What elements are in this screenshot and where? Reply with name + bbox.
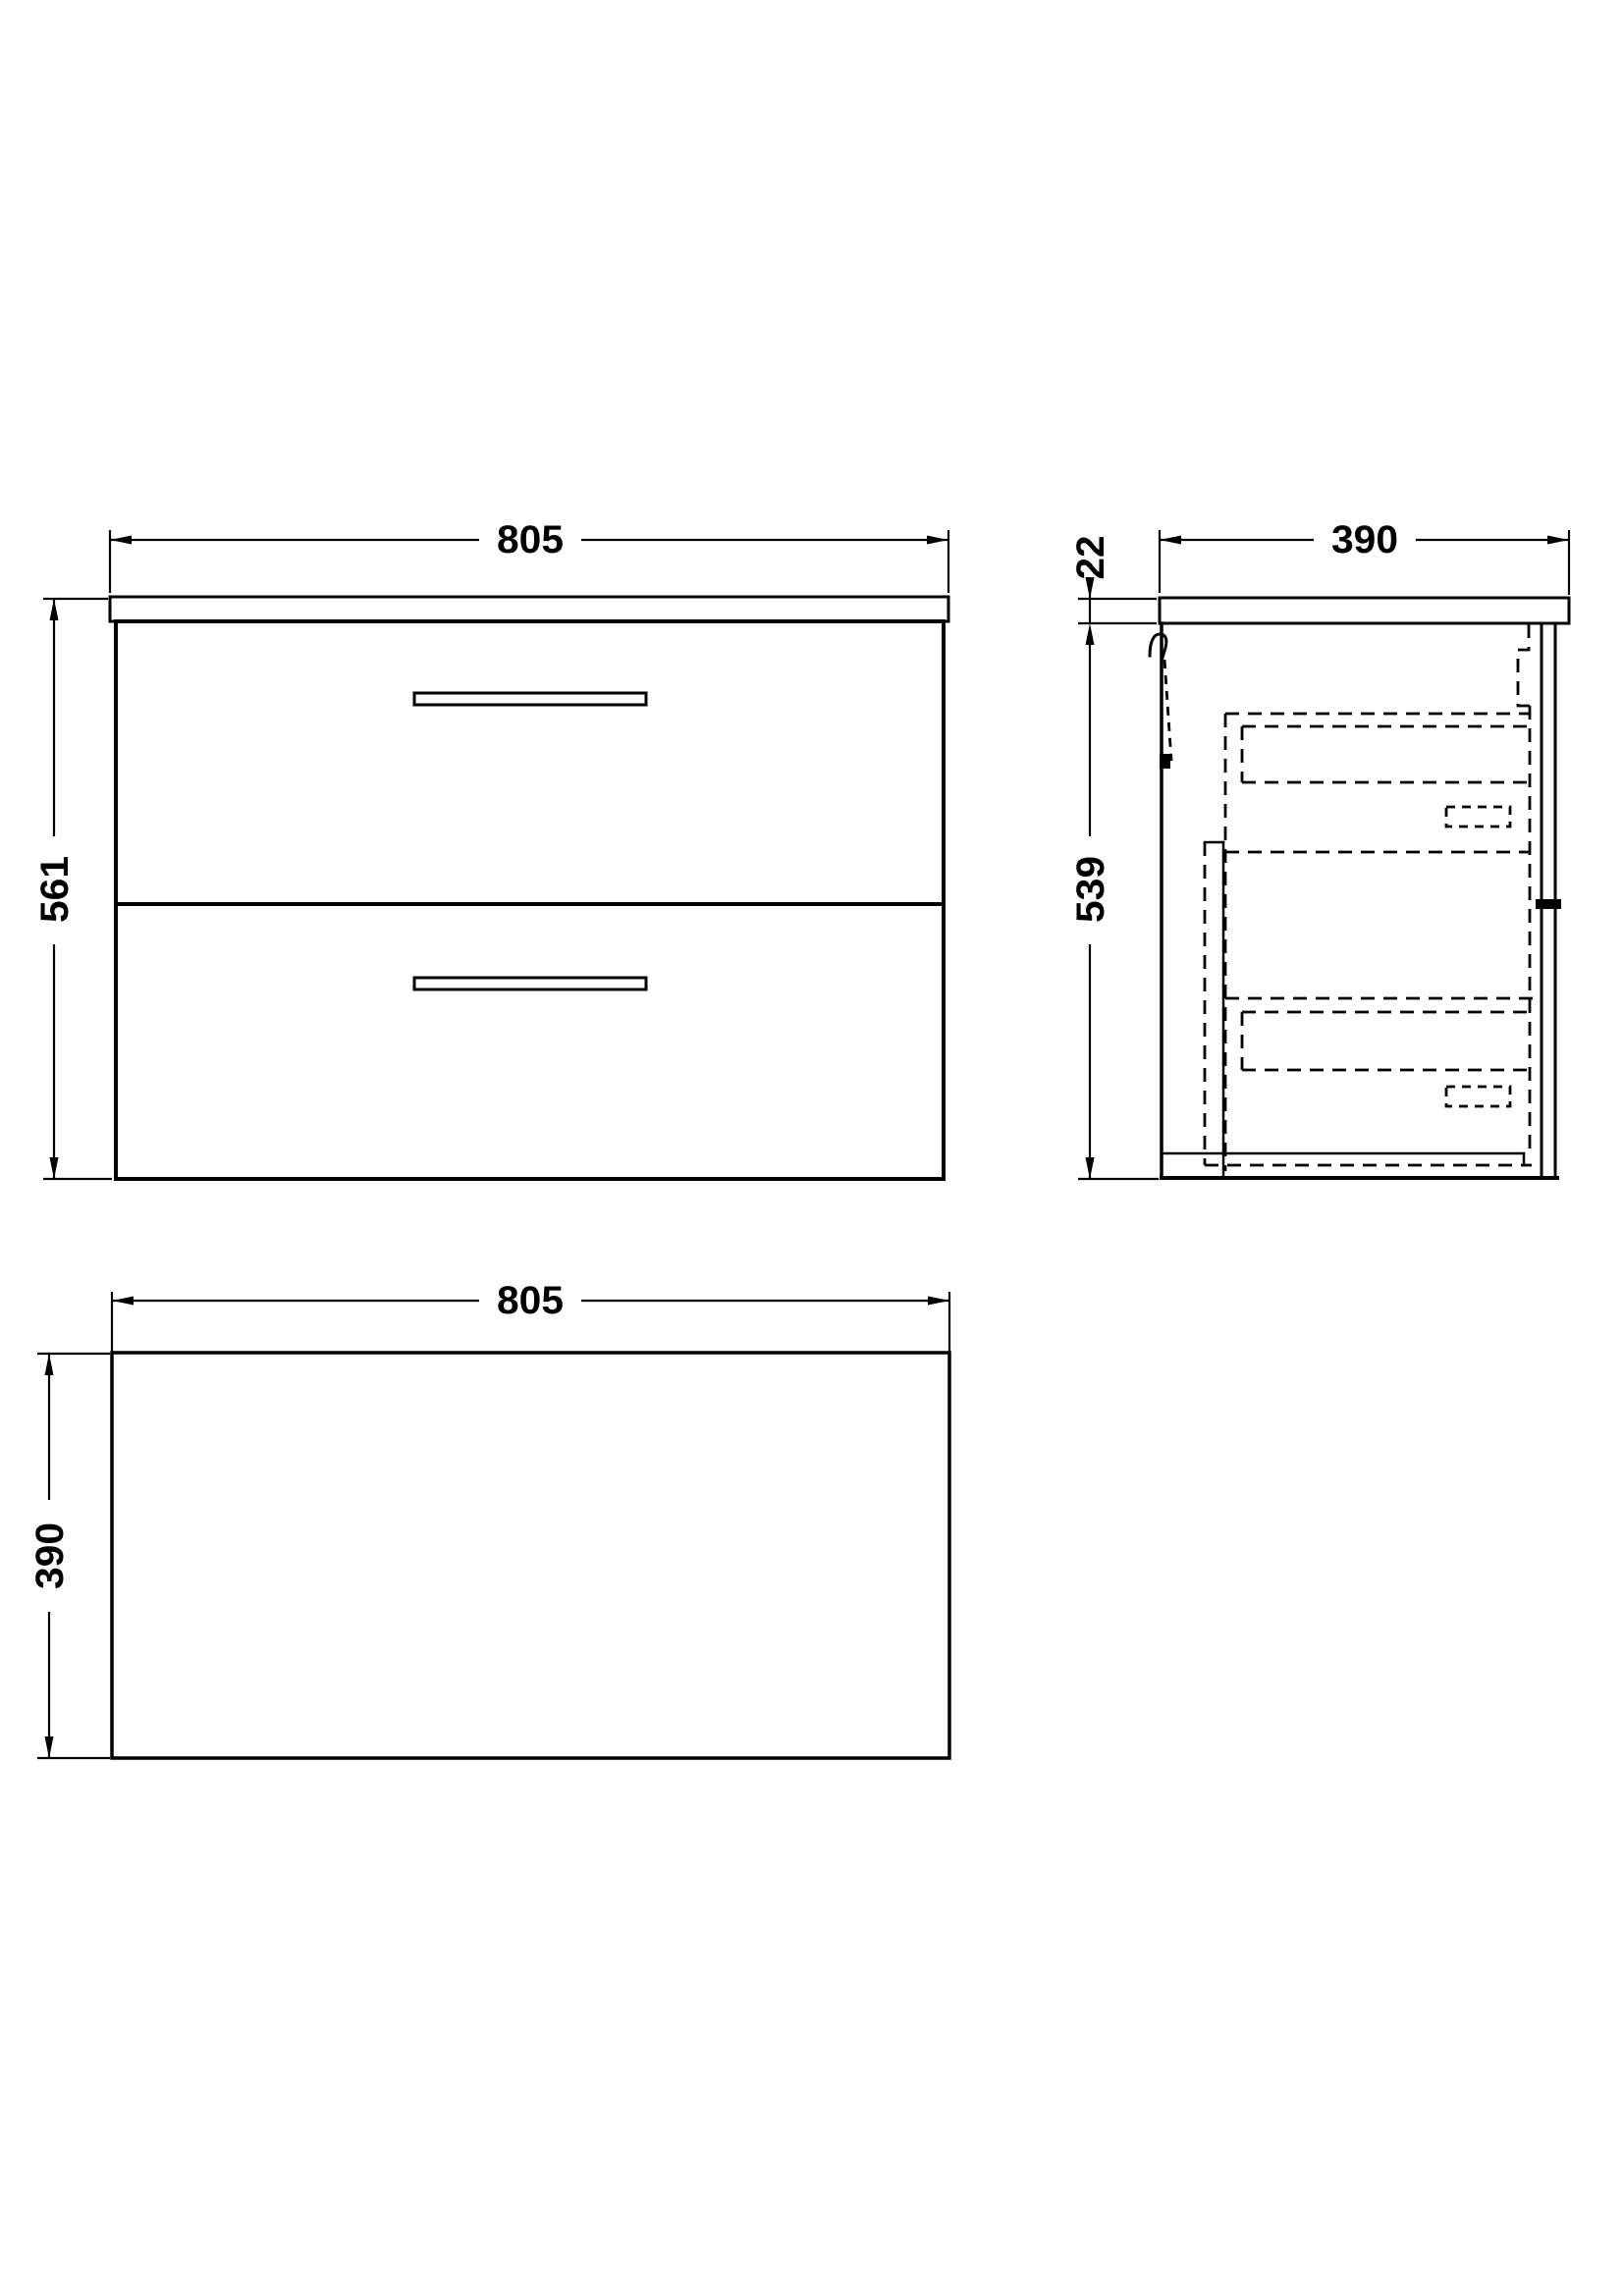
arrowhead (45, 1736, 54, 1758)
cabinet-height-label: 539 (1069, 856, 1112, 923)
side-worktop (1160, 598, 1569, 623)
drawer-front-junction (1536, 899, 1561, 909)
plan-width-dimension: 805 (112, 1279, 949, 1353)
arrowhead (50, 1157, 59, 1179)
technical-drawing-page: 805 561 390 (0, 0, 1623, 2296)
worktop-thickness-dimension: 22 (1069, 536, 1157, 646)
arrowhead (45, 1354, 54, 1375)
side-depth-label: 390 (1331, 518, 1398, 561)
arrowhead (928, 1297, 949, 1306)
plan-depth-label: 390 (28, 1522, 72, 1589)
arrowhead (1086, 623, 1095, 645)
arrowhead (112, 1297, 134, 1306)
plan-view: 805 390 (28, 1279, 949, 1758)
bracket-hook (1150, 634, 1166, 658)
arrowhead (1086, 1157, 1095, 1179)
plan-width-label: 805 (497, 1279, 564, 1322)
front-height-label: 561 (33, 856, 77, 923)
plan-worktop-outline (112, 1353, 949, 1758)
drawer-runner-block (1446, 807, 1510, 827)
bracket-stem (1164, 660, 1171, 761)
worktop-thickness-label: 22 (1069, 536, 1112, 580)
front-width-label: 805 (497, 518, 564, 561)
side-depth-dimension: 390 (1160, 518, 1569, 595)
arrowhead (110, 536, 132, 545)
plan-depth-dimension: 390 (28, 1354, 110, 1758)
arrowhead (1547, 536, 1569, 545)
bracket-foot (1160, 754, 1170, 769)
front-view: 805 561 (33, 518, 948, 1179)
vanity-unit-technical-drawing: 805 561 390 (0, 0, 1623, 2296)
top-drawer-handle (414, 693, 646, 705)
lower-drawer-box (1225, 998, 1534, 1106)
front-height-dimension: 561 (33, 599, 112, 1179)
side-view: 390 22 539 (1069, 518, 1569, 1179)
drawer-runner-block (1446, 1087, 1510, 1106)
cabinet-height-dimension: 539 (1069, 645, 1159, 1179)
bottom-drawer-handle (414, 978, 646, 989)
arrowhead (50, 599, 59, 620)
front-worktop (110, 597, 948, 621)
drawer-front-hanger-profile (1518, 624, 1530, 706)
arrowhead (927, 536, 948, 545)
front-width-dimension: 805 (110, 518, 948, 593)
service-void (1205, 842, 1530, 1178)
arrowhead (1160, 536, 1181, 545)
upper-drawer-box (1225, 714, 1529, 1171)
